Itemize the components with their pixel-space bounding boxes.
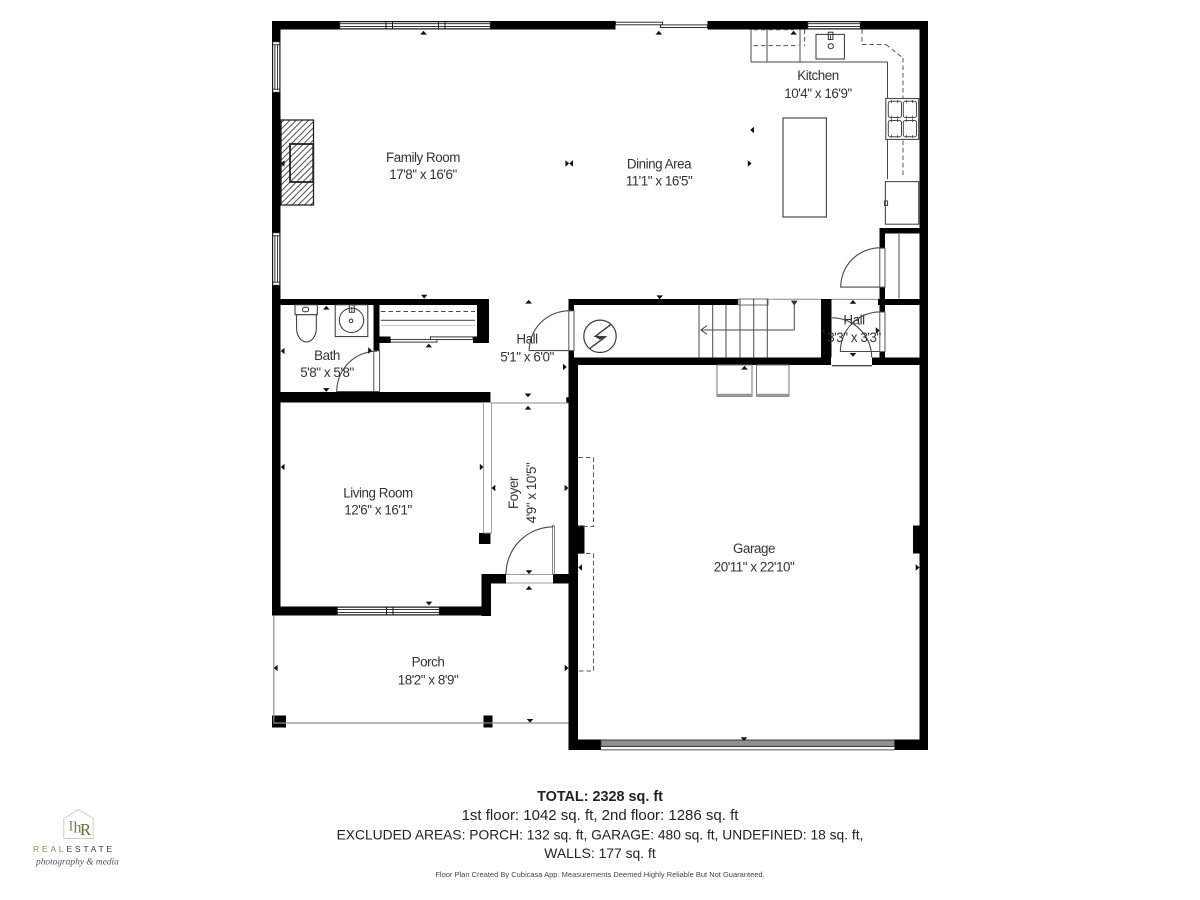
svg-text:Living Room: Living Room — [343, 486, 413, 501]
svg-text:Bath: Bath — [314, 348, 340, 363]
svg-text:WALLS: 177 sq. ft: WALLS: 177 sq. ft — [544, 845, 656, 861]
svg-text:Hall: Hall — [516, 332, 538, 347]
svg-text:Family Room: Family Room — [386, 150, 460, 165]
svg-text:5'1" x 6'0": 5'1" x 6'0" — [500, 350, 554, 365]
svg-text:R: R — [80, 820, 91, 839]
svg-text:TOTAL: 2328 sq. ft: TOTAL: 2328 sq. ft — [537, 789, 663, 805]
svg-text:3'3" x 3'3": 3'3" x 3'3" — [827, 330, 881, 345]
svg-text:Floor Plan Created By Cubicasa: Floor Plan Created By Cubicasa App. Meas… — [435, 870, 764, 879]
svg-text:Dining Area: Dining Area — [627, 157, 692, 172]
svg-text:Kitchen: Kitchen — [797, 68, 839, 83]
svg-text:Foyer: Foyer — [506, 476, 521, 509]
svg-text:11'1" x 16'5": 11'1" x 16'5" — [626, 174, 693, 189]
svg-text:18'2" x 8'9": 18'2" x 8'9" — [398, 673, 459, 688]
svg-text:4'9" x 10'5": 4'9" x 10'5" — [524, 462, 539, 523]
svg-text:ESTATE: ESTATE — [67, 844, 115, 854]
svg-text:1st floor: 1042 sq. ft, 2nd fl: 1st floor: 1042 sq. ft, 2nd floor: 1286 … — [462, 807, 740, 824]
svg-text:EXCLUDED AREAS: PORCH: 132 sq.: EXCLUDED AREAS: PORCH: 132 sq. ft, GARAG… — [337, 828, 864, 843]
svg-text:REAL: REAL — [33, 844, 66, 854]
svg-text:Hall: Hall — [843, 313, 865, 328]
svg-text:Porch: Porch — [412, 655, 445, 670]
svg-text:photography & media: photography & media — [35, 858, 119, 868]
svg-text:20'11" x 22'10": 20'11" x 22'10" — [714, 560, 795, 575]
svg-text:Garage: Garage — [733, 541, 775, 556]
svg-text:5'8" x 5'8": 5'8" x 5'8" — [300, 365, 354, 380]
svg-text:17'8" x 16'6": 17'8" x 16'6" — [389, 167, 457, 182]
svg-text:10'4" x 16'9": 10'4" x 16'9" — [784, 86, 852, 101]
svg-text:12'6" x 16'1": 12'6" x 16'1" — [344, 503, 412, 518]
